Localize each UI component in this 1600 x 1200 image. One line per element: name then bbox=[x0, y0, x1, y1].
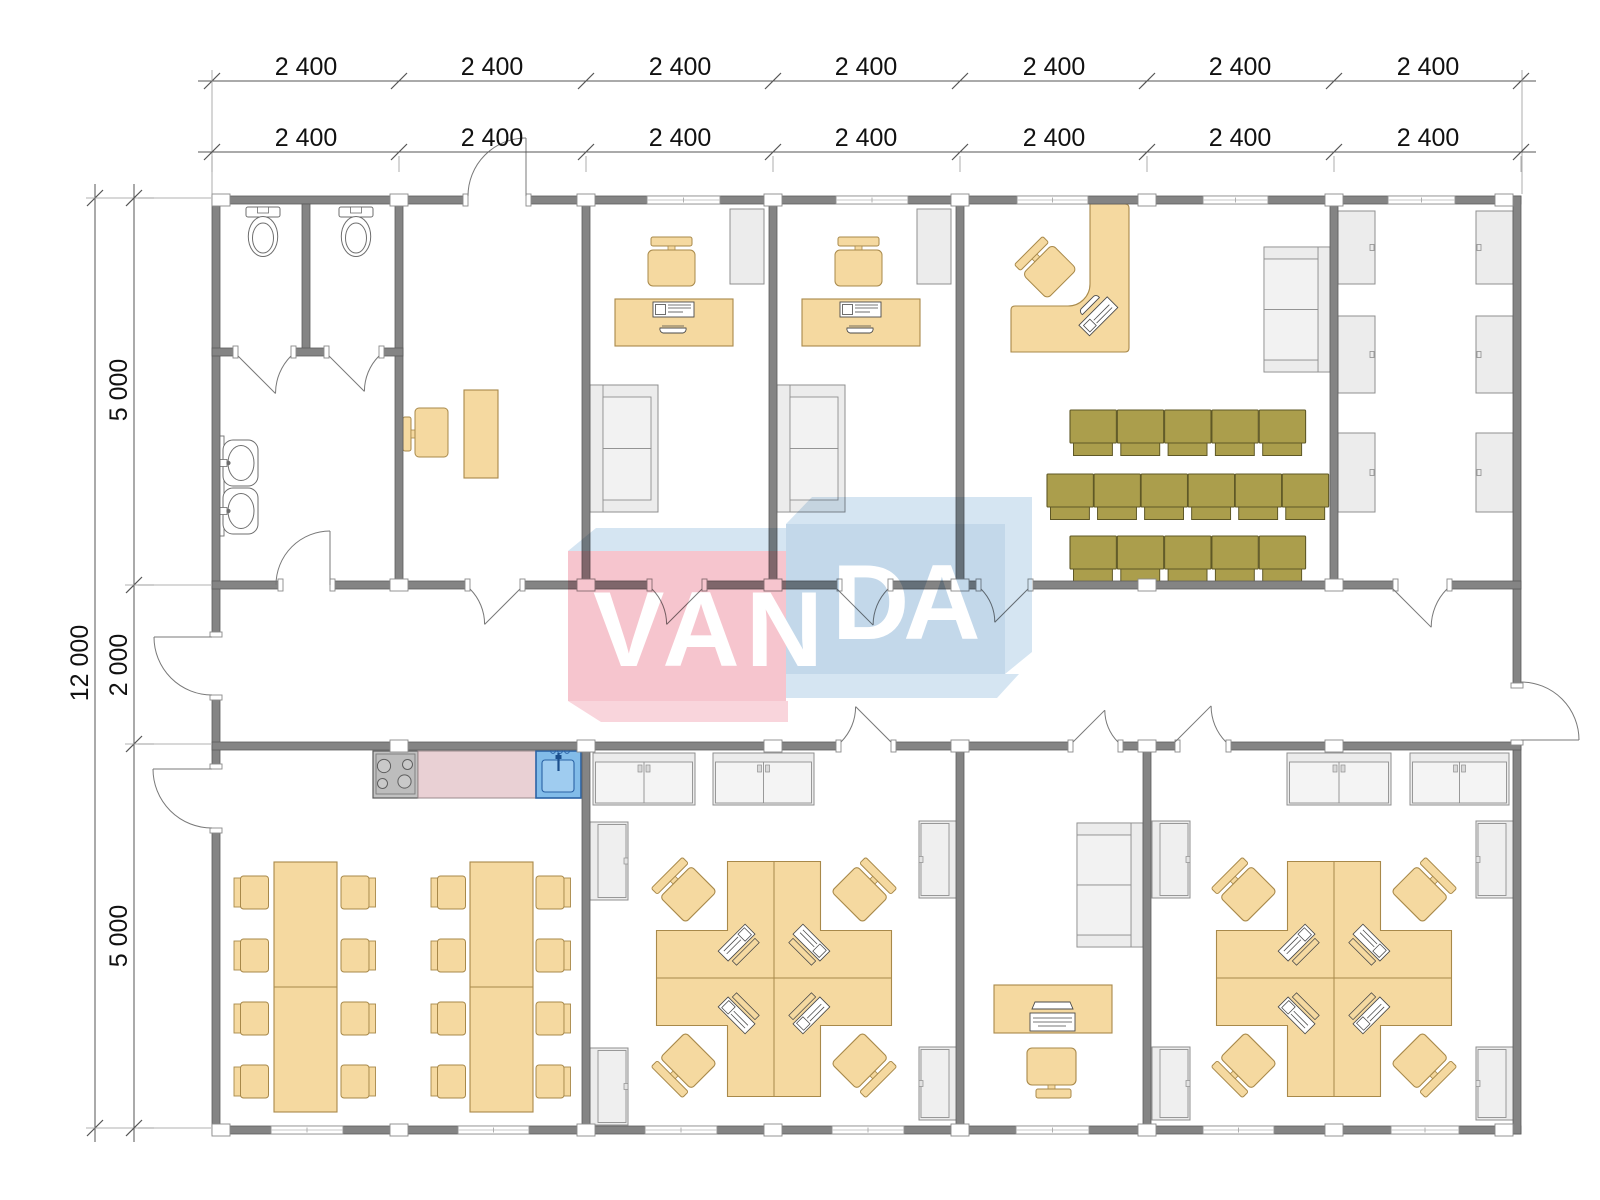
svg-text:2 400: 2 400 bbox=[1209, 124, 1272, 152]
svg-text:2 400: 2 400 bbox=[1023, 53, 1086, 81]
svg-text:12 000: 12 000 bbox=[66, 625, 94, 701]
svg-text:2 400: 2 400 bbox=[649, 53, 712, 81]
svg-text:2 400: 2 400 bbox=[1397, 124, 1460, 152]
svg-text:DA: DA bbox=[832, 542, 978, 662]
svg-text:VAN: VAN bbox=[593, 569, 829, 689]
svg-text:5 000: 5 000 bbox=[105, 905, 133, 968]
svg-text:2 000: 2 000 bbox=[105, 634, 133, 697]
svg-text:2 400: 2 400 bbox=[1397, 53, 1460, 81]
svg-text:2 400: 2 400 bbox=[1023, 124, 1086, 152]
svg-text:2 400: 2 400 bbox=[461, 124, 524, 152]
svg-text:2 400: 2 400 bbox=[835, 53, 898, 81]
svg-text:2 400: 2 400 bbox=[275, 53, 338, 81]
svg-text:2 400: 2 400 bbox=[275, 124, 338, 152]
svg-text:2 400: 2 400 bbox=[835, 124, 898, 152]
svg-text:5 000: 5 000 bbox=[105, 359, 133, 422]
svg-text:2 400: 2 400 bbox=[649, 124, 712, 152]
svg-text:2 400: 2 400 bbox=[1209, 53, 1272, 81]
svg-text:2 400: 2 400 bbox=[461, 53, 524, 81]
